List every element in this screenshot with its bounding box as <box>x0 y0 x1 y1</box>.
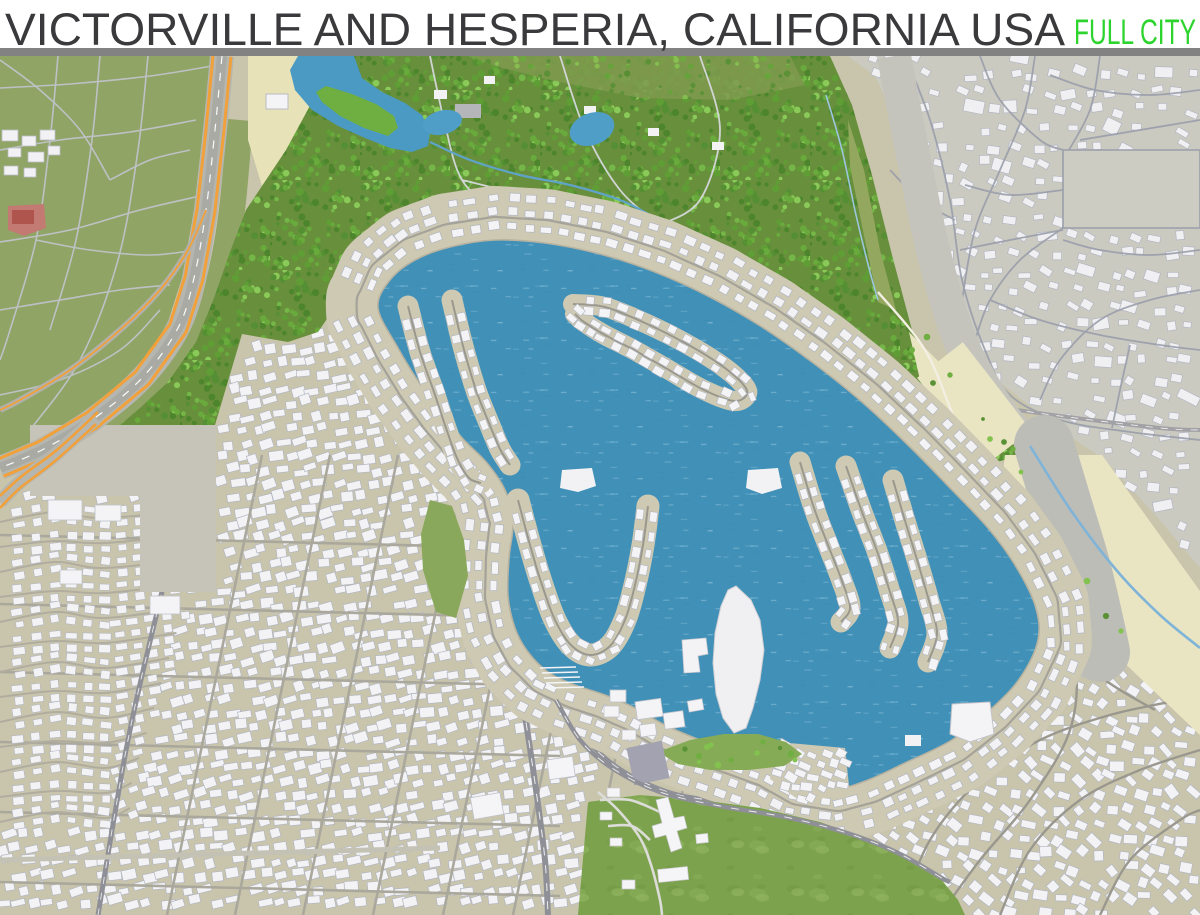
svg-text:FULL CITY: FULL CITY <box>1074 13 1196 52</box>
svg-text:VICTORVILLE AND HESPERIA, CALI: VICTORVILLE AND HESPERIA, CALIFORNIA USA <box>5 4 1065 55</box>
